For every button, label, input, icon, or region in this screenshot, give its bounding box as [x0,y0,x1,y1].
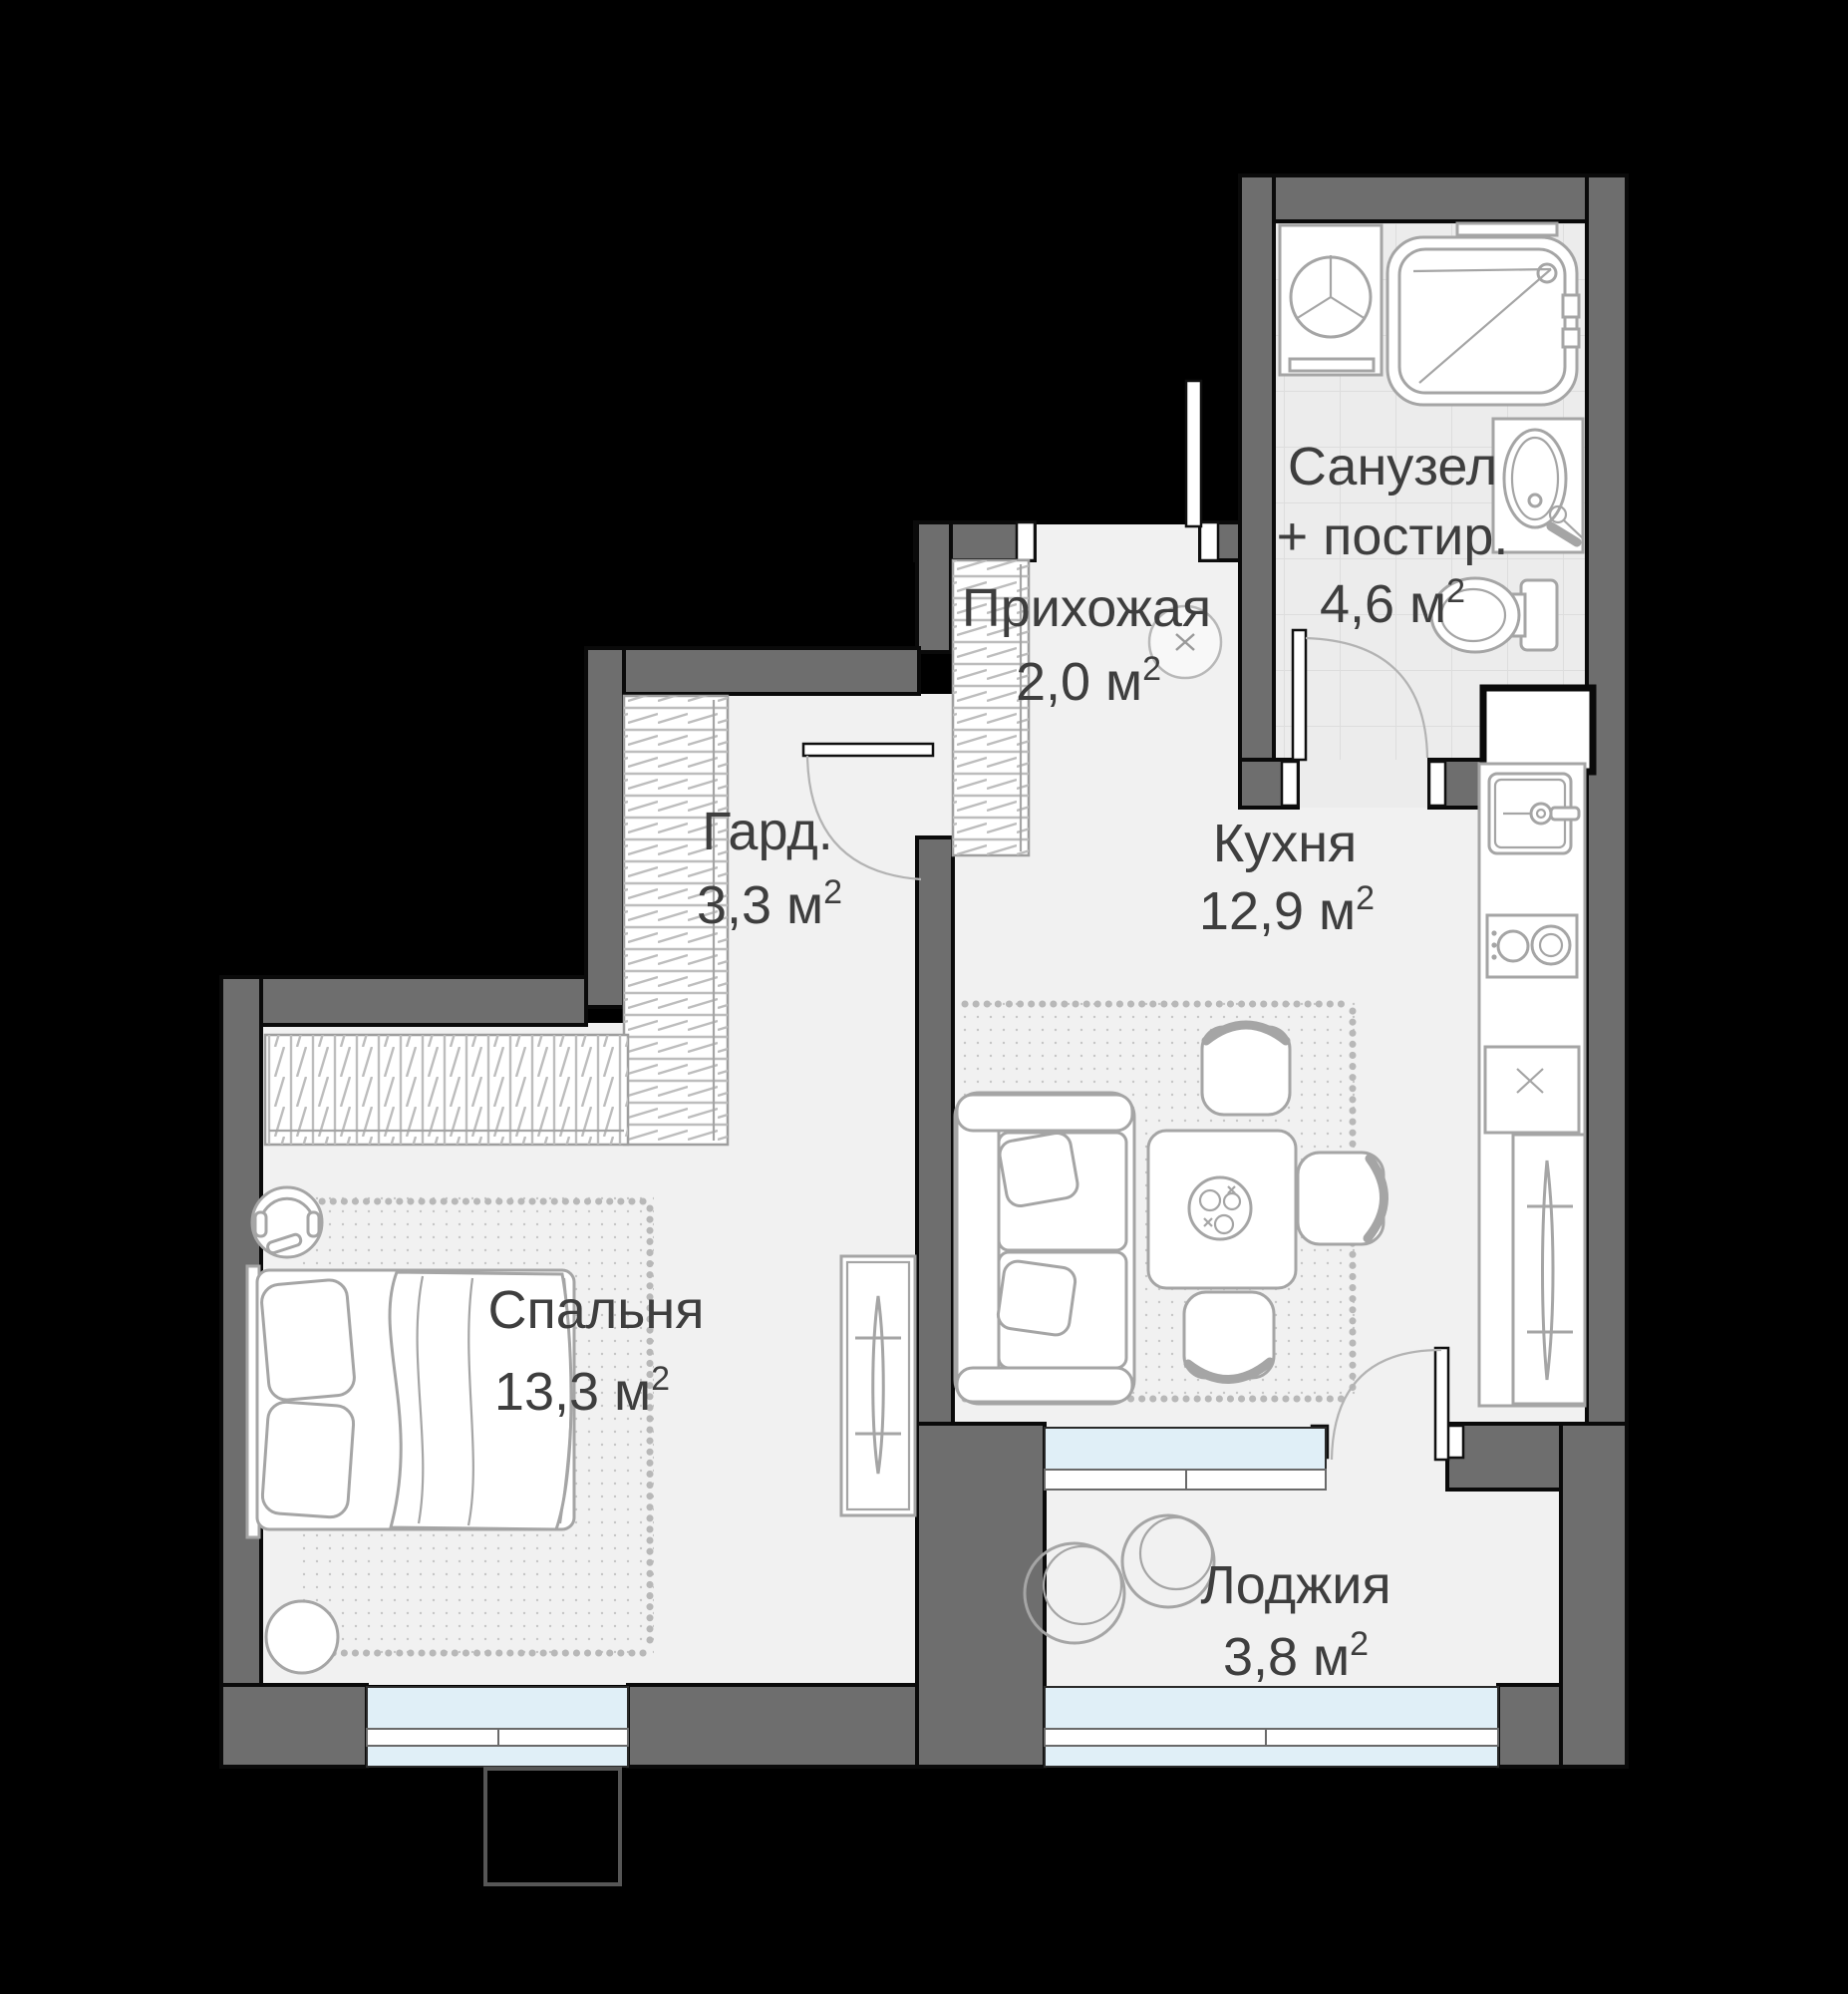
bedroom-window [367,1687,628,1767]
label-hallway-name: Прихожая [962,578,1211,638]
label-bathroom-area: 4,6 м2 [1320,572,1465,634]
chair-right-icon [1298,1153,1385,1244]
dining-table-icon [1148,1131,1296,1288]
wall-loggia-right [1561,1424,1627,1767]
wall-bedroom-top [221,977,586,1025]
entrance-jamb-right [1200,522,1218,560]
label-loggia-area: 3,8 м2 [1223,1625,1369,1687]
entrance-doorway-sill [1035,524,1200,560]
vent-shaft-icon [1483,688,1593,772]
balcony-door-jamb-right [1447,1426,1463,1458]
wall-bathroom-top [1240,175,1627,221]
dresser-icon [841,1256,915,1515]
label-bedroom-area: 13,3 м2 [494,1360,670,1422]
label-bathroom-name: Санузел [1288,437,1497,497]
label-kitchen-area: 12,9 м2 [1199,879,1375,941]
wall-bedroom-bottom-right [628,1685,919,1767]
wall-wardrobe-top [586,648,919,694]
stool-icon [266,1601,338,1673]
label-loggia-name: Лоджия [1200,1555,1390,1615]
wall-bedroom-kitchen [917,837,953,1428]
bathtub-icon [1387,223,1579,405]
sofa-icon [955,1093,1134,1404]
floor-plan-canvas: Санузел + постир. 4,6 м2 Прихожая 2,0 м2… [0,0,1848,1994]
tall-cabinet-icon [1513,1135,1585,1404]
loggia-window-bottom-frame [1045,1729,1498,1746]
washing-machine-icon [1280,225,1382,375]
headphones-chair-icon [252,1187,322,1257]
bedroom-closet-hatch-icon [265,1035,628,1145]
entrance-jamb-left [1017,522,1035,560]
label-wardrobe-area: 3,3 м2 [697,873,842,935]
loggia-window-bottom [1045,1687,1498,1767]
entrance-door-leaf [1186,381,1201,526]
kitchen-loggia-window [1045,1428,1326,1470]
label-wardrobe-name: Гард. [702,802,833,861]
label-hallway-area: 2,0 м2 [1016,650,1161,712]
bathroom-doorway-sill [1296,760,1429,808]
chair-bottom-icon [1184,1292,1274,1380]
balcony-doorway-sill [1326,1424,1447,1490]
bathroom-door-jamb-right [1429,762,1445,806]
wall-bedroom-bottom-left [221,1685,367,1767]
label-bedroom-name: Спальня [488,1280,705,1340]
bathroom-door-jamb-left [1282,762,1298,806]
wall-wardrobe-left [586,648,624,1007]
floor-plan-page: Санузел + постир. 4,6 м2 Прихожая 2,0 м2… [0,0,1848,1994]
wall-right-outer [1587,175,1627,1497]
chair-top-icon [1202,1025,1290,1115]
label-kitchen-name: Кухня [1213,814,1358,873]
label-bathroom-name2: + постир. [1277,506,1509,566]
wall-loggia-bottom-right [1498,1685,1561,1767]
wardrobe-doorway-sill [915,694,953,839]
wall-bathroom-left [1240,175,1274,764]
wall-hall-wardrobe-vertical [917,522,951,652]
